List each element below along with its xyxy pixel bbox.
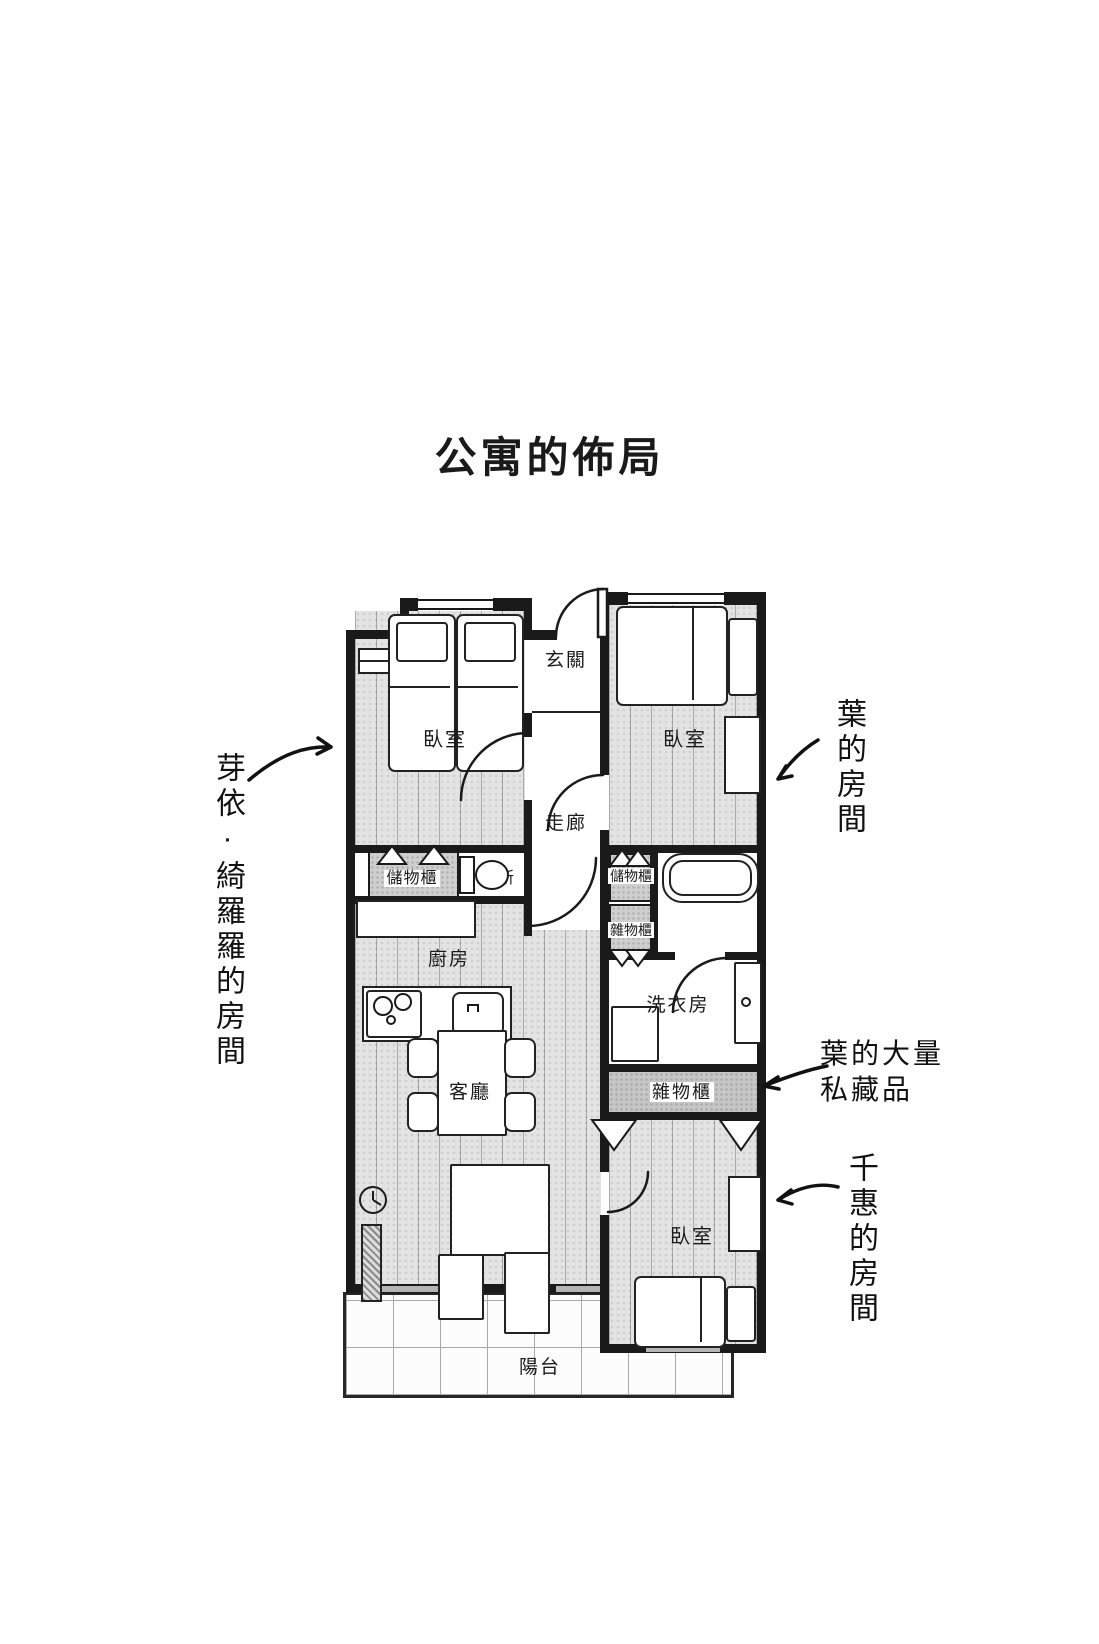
door-arc-laundry — [673, 958, 727, 1012]
closet-mark — [626, 950, 650, 966]
door-arc-bedroom-top-left — [461, 733, 528, 800]
stove-burner — [387, 1016, 395, 1024]
entrance-door-leaf — [598, 589, 607, 637]
door-arc-ldk — [528, 858, 596, 926]
closet-mark — [626, 850, 650, 866]
closet-mark — [720, 1120, 762, 1150]
laundry-faucet — [742, 998, 750, 1006]
kitchen-faucet — [468, 1005, 478, 1012]
arrow-yo-room — [778, 740, 818, 779]
floor-plan-page: 公寓的佈局 — [0, 0, 1099, 1644]
toilet-tank — [460, 857, 474, 893]
arrow-yo-collection — [764, 1066, 827, 1089]
closet-mark — [592, 1120, 636, 1150]
closet-mark — [378, 846, 406, 864]
stove-burner — [395, 994, 411, 1010]
toilet-bowl — [476, 861, 508, 889]
stove-burner — [374, 997, 392, 1015]
plan-linework — [0, 0, 1099, 1644]
closet-mark — [420, 846, 448, 864]
door-arc-bedroom-bottom-right — [608, 1172, 648, 1212]
arrow-mei-kirara — [249, 738, 331, 780]
door-arc-bedroom-top-right — [548, 775, 603, 830]
clock-hands — [373, 1191, 381, 1205]
arrow-chie-room — [778, 1185, 838, 1204]
